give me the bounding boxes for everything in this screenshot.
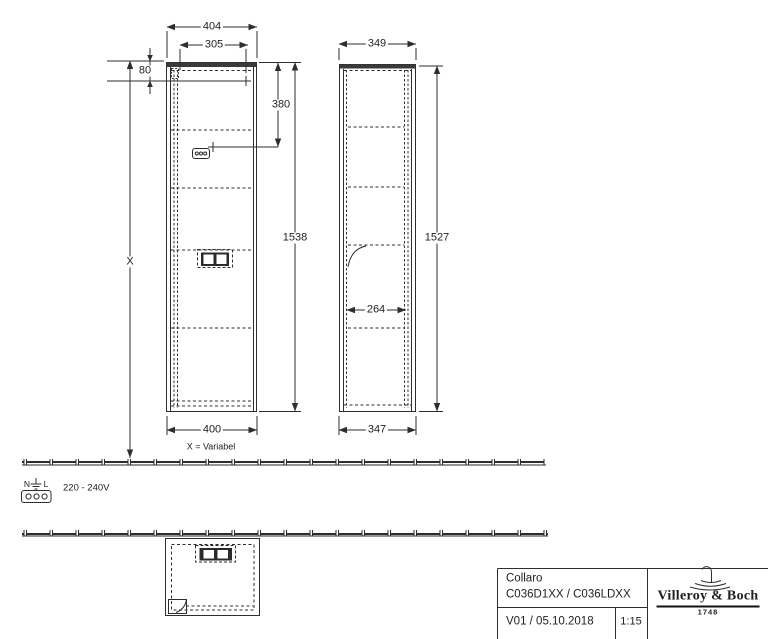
ground-icon — [31, 478, 42, 489]
dim-label-380: 380 — [270, 100, 292, 111]
terminal-n-label: N — [24, 480, 30, 489]
dim-label-1527: 1527 — [423, 233, 451, 244]
plan-view-cabinet — [166, 539, 260, 616]
drawing-canvas — [0, 0, 768, 639]
dim-label-x: X — [124, 257, 135, 268]
dim-label-1538: 1538 — [281, 233, 309, 244]
voltage-label: 220 - 240V — [63, 483, 109, 493]
floor-hatch-line-upper — [22, 459, 546, 465]
product-codes: C036D1XX / C036LDXX — [506, 589, 631, 601]
dim-label-80: 80 — [137, 66, 153, 77]
brand-year: 1748 — [698, 608, 719, 617]
mount-point-icon — [208, 76, 251, 152]
power-plug-icon — [22, 491, 52, 503]
drawing-scale: 1:15 — [618, 617, 643, 628]
side-view-cabinet — [340, 65, 416, 412]
variable-note: X = Variabel — [185, 443, 238, 452]
technical-drawing-page: 404 305 80 380 1538 400 X X = Variabel 3… — [0, 0, 768, 639]
terminal-l-label: L — [44, 480, 49, 489]
power-socket-icon-plan — [196, 546, 236, 563]
product-name: Collaro — [506, 573, 542, 585]
front-view-cabinet — [167, 63, 279, 412]
door-swing-arc — [348, 246, 366, 267]
power-socket-icon — [198, 250, 233, 268]
brand-name: Villeroy & Boch — [657, 589, 760, 608]
dim-label-264: 264 — [365, 305, 387, 316]
dim-label-349: 349 — [366, 39, 388, 50]
dim-label-400: 400 — [201, 425, 223, 436]
dim-label-305: 305 — [203, 40, 225, 51]
floor-hatch-line-lower — [22, 530, 548, 536]
power-connector-icon — [193, 149, 210, 159]
front-view-dimensions — [107, 27, 301, 458]
dim-label-347: 347 — [366, 425, 388, 436]
dim-label-404: 404 — [201, 22, 223, 33]
version-date: V01 / 05.10.2018 — [506, 616, 594, 628]
brand-fountain-icon — [690, 567, 730, 590]
